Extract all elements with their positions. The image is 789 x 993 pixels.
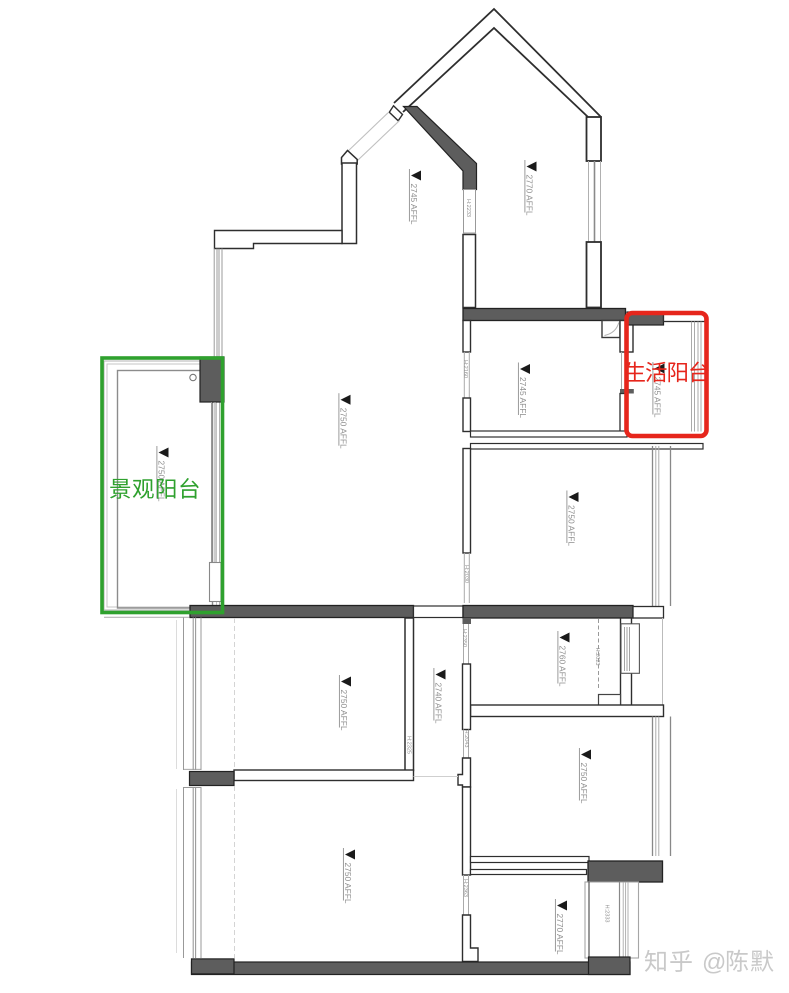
svg-text:H:2030: H:2030 [463,565,469,583]
svg-text:2745 AFFL: 2745 AFFL [409,184,419,225]
svg-text:2770 AFFL: 2770 AFFL [525,175,535,216]
svg-text:H:2160: H:2160 [462,360,468,378]
svg-text:2750 AFFL: 2750 AFFL [339,690,349,731]
svg-text:H:2233: H:2233 [465,199,471,217]
svg-text:2750 AFFL: 2750 AFFL [343,863,353,904]
svg-text:@: @ [702,949,726,976]
svg-text:H:2350: H:2350 [461,629,467,647]
svg-text:2750 AFFL: 2750 AFFL [579,763,589,804]
svg-text:2750 AFFL: 2750 AFFL [567,505,577,546]
svg-text:2770 AFFL: 2770 AFFL [555,914,565,955]
svg-text:H:2023: H:2023 [594,648,600,666]
svg-text:H:2333: H:2333 [604,905,610,923]
svg-text:H:2043: H:2043 [463,730,469,748]
svg-text:H:2363: H:2363 [462,879,468,897]
svg-text:2760 AFFL: 2760 AFFL [558,646,568,687]
svg-text:2745 AFFL: 2745 AFFL [653,377,663,418]
svg-text:2745 AFFL: 2745 AFFL [518,377,528,418]
svg-text:H:2325: H:2325 [406,736,412,754]
svg-text:2750 AFFL: 2750 AFFL [339,408,349,449]
svg-text:2740 AFFL: 2740 AFFL [434,683,444,724]
